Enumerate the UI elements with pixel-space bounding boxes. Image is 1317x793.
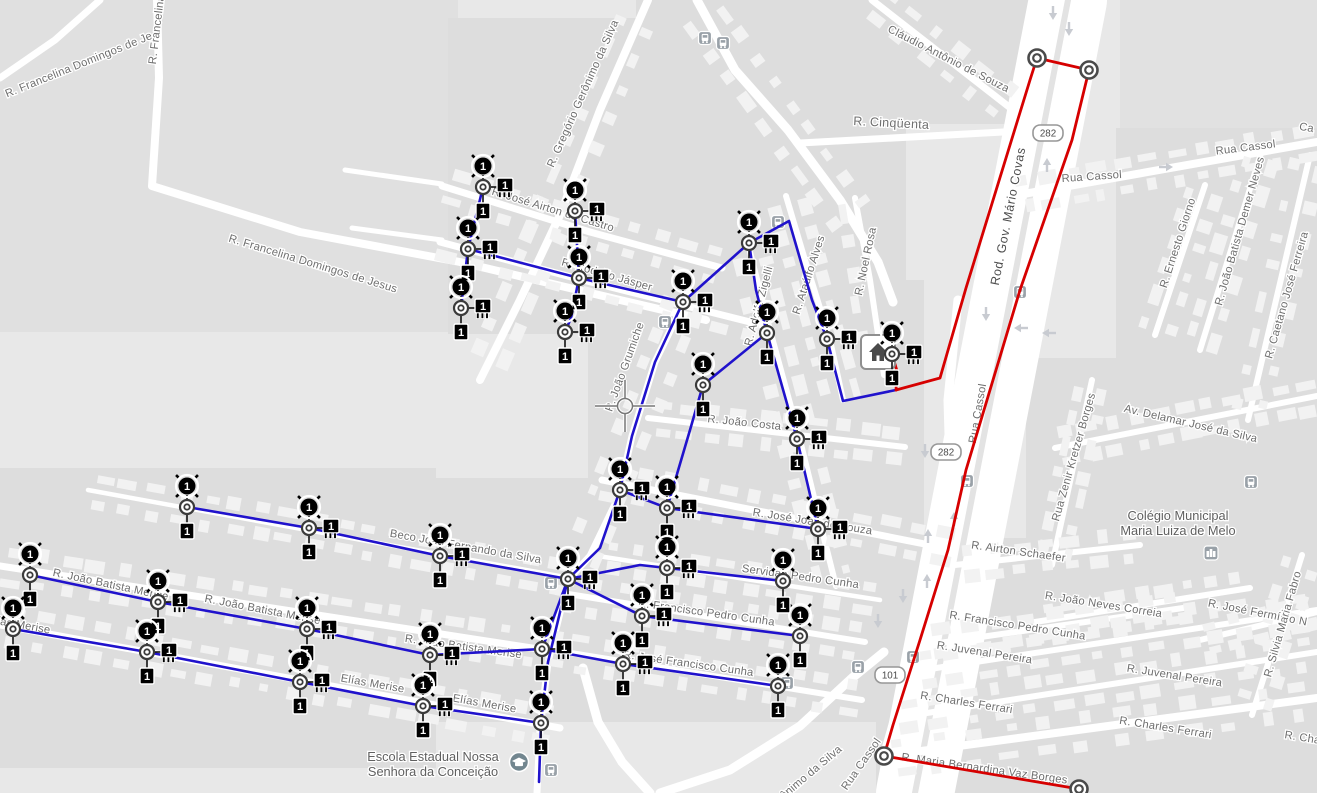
- load-count: 1: [480, 161, 486, 173]
- transformer-icon[interactable]: 1: [321, 620, 337, 640]
- load-icon[interactable]: 1: [531, 617, 553, 639]
- load-icon[interactable]: 1: [568, 246, 590, 268]
- poi-label: Maria Luiza de Melo: [1120, 523, 1235, 538]
- badge-count: 1: [775, 705, 781, 717]
- building-footprint: [813, 671, 829, 684]
- building-footprint: [882, 426, 901, 441]
- bus-stop-icon[interactable]: [699, 32, 712, 45]
- building-footprint: [1139, 439, 1150, 451]
- badge-count: 1: [538, 742, 544, 754]
- building-footprint: [1097, 529, 1108, 544]
- network-node[interactable]: 11: [772, 549, 794, 613]
- building-footprint: [933, 732, 945, 741]
- badge-count: 1: [617, 509, 623, 521]
- building-footprint: [821, 616, 840, 632]
- node-count-tag[interactable]: 1: [660, 584, 674, 600]
- node-count-tag[interactable]: 1: [561, 595, 575, 611]
- transformer-icon[interactable]: 1: [497, 178, 513, 198]
- building-footprint: [259, 683, 269, 692]
- bus-stop-icon[interactable]: [717, 37, 730, 50]
- badge-count: 1: [639, 483, 645, 495]
- building-footprint: [1066, 560, 1080, 569]
- route-endpoint-node[interactable]: [1029, 50, 1046, 67]
- transformer-icon[interactable]: 1: [656, 607, 672, 627]
- load-icon[interactable]: 1: [672, 270, 694, 292]
- node-count-tag[interactable]: 1: [820, 355, 834, 371]
- load-icon[interactable]: 1: [557, 547, 579, 569]
- node-count-tag[interactable]: 1: [760, 349, 774, 365]
- node-count-tag[interactable]: 1: [568, 227, 582, 243]
- load-icon[interactable]: 1: [756, 301, 778, 323]
- node-count-tag[interactable]: 1: [140, 668, 154, 684]
- building-footprint: [964, 568, 981, 583]
- load-icon[interactable]: 1: [450, 276, 472, 298]
- route-endpoint-node[interactable]: [1081, 62, 1098, 79]
- node-count-tag[interactable]: 1: [790, 455, 804, 471]
- load-icon[interactable]: 1: [472, 155, 494, 177]
- load-icon[interactable]: 1: [772, 549, 794, 571]
- building-footprint: [1012, 564, 1025, 574]
- badge-count: 1: [437, 575, 443, 587]
- transformer-icon[interactable]: 1: [482, 240, 498, 260]
- map-viewport[interactable]: R. Francelina Domingos de JeR. Francelin…: [0, 0, 1317, 793]
- building-footprint: [1038, 539, 1053, 548]
- badge-count: 1: [768, 236, 774, 248]
- bus-stop-icon[interactable]: [545, 577, 558, 590]
- network-node[interactable]: 11: [789, 604, 811, 668]
- poi-label: Senhora da Conceição: [368, 764, 498, 779]
- network-node[interactable]: 11: [530, 691, 552, 755]
- building-footprint: [1007, 723, 1018, 731]
- route-endpoint-node[interactable]: [876, 748, 893, 765]
- badge-count: 1: [297, 701, 303, 713]
- badge-count: 1: [620, 683, 626, 695]
- building-footprint: [852, 448, 872, 462]
- load-count: 1: [562, 306, 568, 318]
- building-footprint: [1006, 664, 1021, 677]
- node-count-tag[interactable]: 1: [535, 665, 549, 681]
- poi-label: Colégio Municipal: [1127, 508, 1228, 523]
- building-footprint: [849, 620, 863, 632]
- load-count: 1: [764, 307, 770, 319]
- building-footprint: [1263, 712, 1274, 727]
- route-shield: 282: [931, 444, 961, 460]
- node-count-tag[interactable]: 1: [302, 544, 316, 560]
- building-footprint: [728, 433, 744, 447]
- node-count-tag[interactable]: 1: [616, 680, 630, 696]
- load-count: 1: [27, 549, 33, 561]
- node-count-tag[interactable]: 1: [811, 545, 825, 561]
- building-footprint: [253, 526, 271, 542]
- building-footprint: [1178, 695, 1197, 711]
- badge-count: 1: [480, 206, 486, 218]
- building-footprint: [985, 568, 1005, 580]
- building-footprint: [1123, 554, 1133, 565]
- building-footprint: [1024, 674, 1043, 689]
- load-count: 1: [680, 276, 686, 288]
- load-count: 1: [306, 502, 312, 514]
- badge-count: 1: [565, 598, 571, 610]
- transformer-icon[interactable]: 1: [589, 202, 605, 222]
- load-count: 1: [10, 603, 16, 615]
- building-footprint: [144, 510, 158, 523]
- building-footprint: [794, 593, 813, 609]
- route-shield: 282: [1033, 125, 1063, 141]
- badge-count: 1: [797, 655, 803, 667]
- building-footprint: [511, 730, 525, 743]
- building-footprint: [743, 583, 760, 598]
- load-count: 1: [565, 553, 571, 565]
- load-count: 1: [155, 576, 161, 588]
- building-footprint: [1073, 740, 1088, 753]
- route-endpoint-node[interactable]: [1071, 781, 1088, 793]
- building-footprint: [716, 627, 732, 641]
- badge-count: 1: [10, 648, 16, 660]
- building-footprint: [620, 583, 631, 595]
- node-count-tag[interactable]: 1: [742, 259, 756, 275]
- network-node[interactable]: 11: [2, 597, 24, 661]
- building-footprint: [1075, 471, 1091, 487]
- transformer-icon[interactable]: 1: [437, 697, 453, 717]
- badge-count: 1: [572, 230, 578, 242]
- badge-count: 1: [815, 548, 821, 560]
- badge-count: 1: [587, 572, 593, 584]
- map-canvas[interactable]: R. Francelina Domingos de JeR. Francelin…: [0, 0, 1317, 793]
- badge-count: 1: [846, 332, 852, 344]
- building-footprint: [1045, 606, 1064, 621]
- load-icon[interactable]: 1: [296, 597, 318, 619]
- load-icon[interactable]: 1: [564, 179, 586, 201]
- building-footprint: [1228, 572, 1240, 585]
- building-footprint: [1203, 575, 1217, 588]
- building-footprint: [61, 585, 74, 598]
- badge-count: 1: [911, 347, 917, 359]
- load-count: 1: [889, 328, 895, 340]
- load-icon[interactable]: 1: [429, 524, 451, 546]
- building-footprint: [656, 428, 671, 438]
- building-footprint: [1092, 650, 1103, 659]
- building-footprint: [1206, 629, 1224, 645]
- load-icon[interactable]: 1: [631, 584, 653, 606]
- badge-count: 1: [449, 648, 455, 660]
- bus-stop-icon[interactable]: [852, 661, 865, 674]
- badge-count: 1: [166, 645, 172, 657]
- load-count: 1: [458, 282, 464, 294]
- building-footprint: [965, 728, 982, 741]
- node-count-tag[interactable]: 1: [696, 401, 710, 417]
- building-footprint: [361, 550, 372, 561]
- building-footprint: [388, 604, 401, 617]
- building-footprint: [811, 701, 823, 713]
- load-icon[interactable]: 1: [656, 536, 678, 558]
- building-footprint: [89, 591, 101, 602]
- badge-count: 1: [764, 352, 770, 364]
- load-count: 1: [144, 626, 150, 638]
- load-icon[interactable]: 1: [530, 691, 552, 713]
- node-count-tag[interactable]: 1: [433, 572, 447, 588]
- load-count: 1: [437, 530, 443, 542]
- building-footprint: [633, 569, 647, 582]
- transformer-icon[interactable]: 1: [811, 430, 827, 450]
- building-footprint: [420, 609, 433, 622]
- building-footprint: [585, 607, 598, 620]
- load-icon[interactable]: 1: [807, 497, 829, 519]
- route-shield: 101: [875, 667, 905, 683]
- badge-count: 1: [328, 521, 334, 533]
- badge-count: 1: [598, 271, 604, 283]
- building-footprint: [198, 520, 210, 533]
- load-count: 1: [815, 503, 821, 515]
- load-icon[interactable]: 1: [738, 211, 760, 233]
- node-count-tag[interactable]: 1: [558, 348, 572, 364]
- building-footprint: [834, 450, 849, 460]
- bus-stop-icon[interactable]: [659, 316, 672, 329]
- transformer-icon[interactable]: 1: [314, 673, 330, 693]
- route-shield-number: 282: [1040, 129, 1056, 140]
- load-icon[interactable]: 1: [19, 543, 41, 565]
- building-footprint: [847, 678, 858, 691]
- node-count-tag[interactable]: 1: [771, 702, 785, 718]
- building-footprint: [501, 624, 511, 633]
- building-footprint: [760, 437, 771, 452]
- transformer-icon[interactable]: 1: [582, 570, 598, 590]
- load-count: 1: [617, 464, 623, 476]
- network-node[interactable]: 11: [692, 353, 714, 417]
- building-footprint: [741, 630, 751, 641]
- badge-count: 1: [306, 547, 312, 559]
- badge-count: 1: [480, 301, 486, 313]
- load-count: 1: [794, 413, 800, 425]
- transformer-icon[interactable]: 1: [444, 646, 460, 666]
- building-footprint: [785, 696, 796, 707]
- load-count: 1: [824, 313, 830, 325]
- transformer-icon[interactable]: 1: [161, 643, 177, 663]
- building-footprint: [1254, 411, 1269, 427]
- badge-count: 1: [664, 587, 670, 599]
- load-count: 1: [620, 638, 626, 650]
- transformer-icon[interactable]: 1: [637, 655, 653, 675]
- building-footprint: [280, 587, 293, 598]
- badge-count: 1: [184, 526, 190, 538]
- badge-count: 1: [487, 242, 493, 254]
- bus-stop-icon[interactable]: [1245, 476, 1258, 489]
- load-count: 1: [576, 252, 582, 264]
- route-shield-number: 282: [938, 448, 954, 459]
- transformer-icon[interactable]: 1: [593, 269, 609, 289]
- badge-count: 1: [584, 325, 590, 337]
- load-icon[interactable]: 1: [289, 650, 311, 672]
- load-icon[interactable]: 1: [881, 322, 903, 344]
- building-footprint: [1023, 703, 1036, 713]
- load-count: 1: [427, 629, 433, 641]
- badge-count: 1: [458, 327, 464, 339]
- load-icon[interactable]: 1: [609, 458, 631, 480]
- building-footprint: [633, 544, 644, 556]
- badge-count: 1: [177, 595, 183, 607]
- badge-count: 1: [639, 635, 645, 647]
- network-node[interactable]: 11: [756, 301, 778, 365]
- load-count: 1: [639, 590, 645, 602]
- load-icon[interactable]: 1: [656, 476, 678, 498]
- badge-count: 1: [561, 642, 567, 654]
- node-count-tag[interactable]: 1: [6, 645, 20, 661]
- building-footprint: [861, 422, 881, 437]
- load-icon[interactable]: 1: [412, 674, 434, 696]
- badge-count: 1: [642, 657, 648, 669]
- transformer-icon[interactable]: 1: [697, 293, 713, 313]
- load-icon[interactable]: 1: [298, 496, 320, 518]
- load-count: 1: [664, 482, 670, 494]
- building-footprint: [1198, 397, 1211, 410]
- load-icon[interactable]: 1: [136, 620, 158, 642]
- node-count-tag[interactable]: 1: [793, 652, 807, 668]
- transformer-icon[interactable]: 1: [681, 559, 697, 579]
- badge-count: 1: [816, 432, 822, 444]
- load-icon[interactable]: 1: [147, 570, 169, 592]
- building-footprint: [705, 433, 720, 444]
- route-shield-number: 101: [882, 671, 898, 682]
- building-footprint: [232, 580, 244, 592]
- node-count-tag[interactable]: 1: [180, 523, 194, 539]
- building-footprint: [1058, 535, 1079, 548]
- transformer-icon[interactable]: 1: [906, 345, 922, 365]
- badge-count: 1: [27, 594, 33, 606]
- building-footprint: [1089, 555, 1109, 570]
- building-footprint: [226, 496, 242, 512]
- node-count-tag[interactable]: 1: [23, 591, 37, 607]
- building-footprint: [713, 579, 728, 594]
- node-count-tag[interactable]: 1: [293, 698, 307, 714]
- building-footprint: [1143, 703, 1157, 716]
- building-footprint: [1144, 620, 1154, 630]
- transformer-icon[interactable]: 1: [579, 323, 595, 343]
- badge-count: 1: [502, 180, 508, 192]
- building-footprint: [1182, 580, 1192, 589]
- transformer-icon[interactable]: 1: [634, 481, 650, 501]
- transformer-icon[interactable]: 1: [454, 547, 470, 567]
- load-icon[interactable]: 1: [816, 307, 838, 329]
- badge-count: 1: [661, 609, 667, 621]
- node-count-tag[interactable]: 1: [613, 506, 627, 522]
- school-building-icon[interactable]: [1204, 546, 1218, 560]
- building-footprint: [891, 739, 902, 748]
- poi-label: Escola Estadual Nossa: [367, 749, 499, 764]
- graduation-cap-icon[interactable]: [510, 753, 529, 772]
- transformer-icon[interactable]: 1: [841, 330, 857, 350]
- badge-count: 1: [794, 458, 800, 470]
- building-footprint: [467, 616, 485, 632]
- transformer-icon[interactable]: 1: [475, 299, 491, 319]
- building-footprint: [608, 542, 618, 551]
- node-count-tag[interactable]: 1: [635, 632, 649, 648]
- building-footprint: [119, 563, 132, 578]
- network-node[interactable]: 11: [176, 475, 198, 539]
- building-footprint: [823, 594, 841, 610]
- building-footprint: [1174, 174, 1186, 188]
- node-count-tag[interactable]: 1: [885, 370, 899, 386]
- badge-count: 1: [442, 699, 448, 711]
- building-footprint: [863, 581, 877, 592]
- node-count-tag[interactable]: 1: [776, 597, 790, 613]
- load-count: 1: [304, 603, 310, 615]
- building-footprint: [836, 418, 851, 432]
- load-count: 1: [539, 623, 545, 635]
- badge-count: 1: [824, 358, 830, 370]
- building-footprint: [1079, 710, 1092, 724]
- node-count-tag[interactable]: 1: [454, 324, 468, 340]
- transformer-icon[interactable]: 1: [323, 519, 339, 539]
- building-footprint: [1293, 709, 1304, 723]
- city-block: [1120, 0, 1317, 128]
- building-footprint: [793, 669, 806, 680]
- load-icon[interactable]: 1: [786, 407, 808, 429]
- transformer-icon[interactable]: 1: [681, 499, 697, 519]
- load-icon[interactable]: 1: [789, 604, 811, 626]
- load-icon[interactable]: 1: [457, 217, 479, 239]
- load-count: 1: [420, 680, 426, 692]
- transformer-icon[interactable]: 1: [556, 640, 572, 660]
- badge-count: 1: [746, 262, 752, 274]
- load-icon[interactable]: 1: [767, 654, 789, 676]
- building-footprint: [1183, 602, 1197, 616]
- badge-count: 1: [420, 725, 426, 737]
- building-footprint: [1120, 646, 1133, 658]
- building-footprint: [31, 642, 43, 653]
- node-count-tag[interactable]: 1: [534, 739, 548, 755]
- load-count: 1: [184, 481, 190, 493]
- badge-count: 1: [594, 204, 600, 216]
- load-icon[interactable]: 1: [554, 300, 576, 322]
- badge-count: 1: [576, 297, 582, 309]
- load-icon[interactable]: 1: [692, 353, 714, 375]
- load-count: 1: [297, 656, 303, 668]
- badge-count: 1: [837, 522, 843, 534]
- transformer-icon[interactable]: 1: [832, 520, 848, 540]
- building-footprint: [229, 676, 240, 687]
- load-icon[interactable]: 1: [612, 632, 634, 654]
- load-count: 1: [746, 217, 752, 229]
- node-count-tag[interactable]: 1: [676, 318, 690, 334]
- building-footprint: [1296, 661, 1307, 674]
- load-count: 1: [700, 359, 706, 371]
- load-count: 1: [775, 660, 781, 672]
- load-count: 1: [780, 555, 786, 567]
- badge-count: 1: [702, 295, 708, 307]
- building-footprint: [388, 554, 402, 569]
- load-icon[interactable]: 1: [176, 475, 198, 497]
- building-footprint: [841, 234, 855, 248]
- badge-count: 1: [144, 671, 150, 683]
- badge-count: 1: [680, 321, 686, 333]
- building-footprint: [312, 694, 325, 707]
- badge-count: 1: [562, 351, 568, 363]
- badge-count: 1: [319, 675, 325, 687]
- bus-stop-icon[interactable]: [545, 764, 558, 777]
- building-footprint: [84, 649, 103, 666]
- transformer-icon[interactable]: 1: [172, 593, 188, 613]
- load-count: 1: [538, 697, 544, 709]
- load-icon[interactable]: 1: [2, 597, 24, 619]
- load-icon[interactable]: 1: [419, 623, 441, 645]
- load-count: 1: [572, 185, 578, 197]
- transformer-icon[interactable]: 1: [763, 234, 779, 254]
- node-count-tag[interactable]: 1: [416, 722, 430, 738]
- building-footprint: [969, 714, 978, 723]
- building-footprint: [522, 656, 533, 667]
- network-node[interactable]: 11: [767, 654, 789, 718]
- building-footprint: [1035, 716, 1050, 731]
- badge-count: 1: [459, 549, 465, 561]
